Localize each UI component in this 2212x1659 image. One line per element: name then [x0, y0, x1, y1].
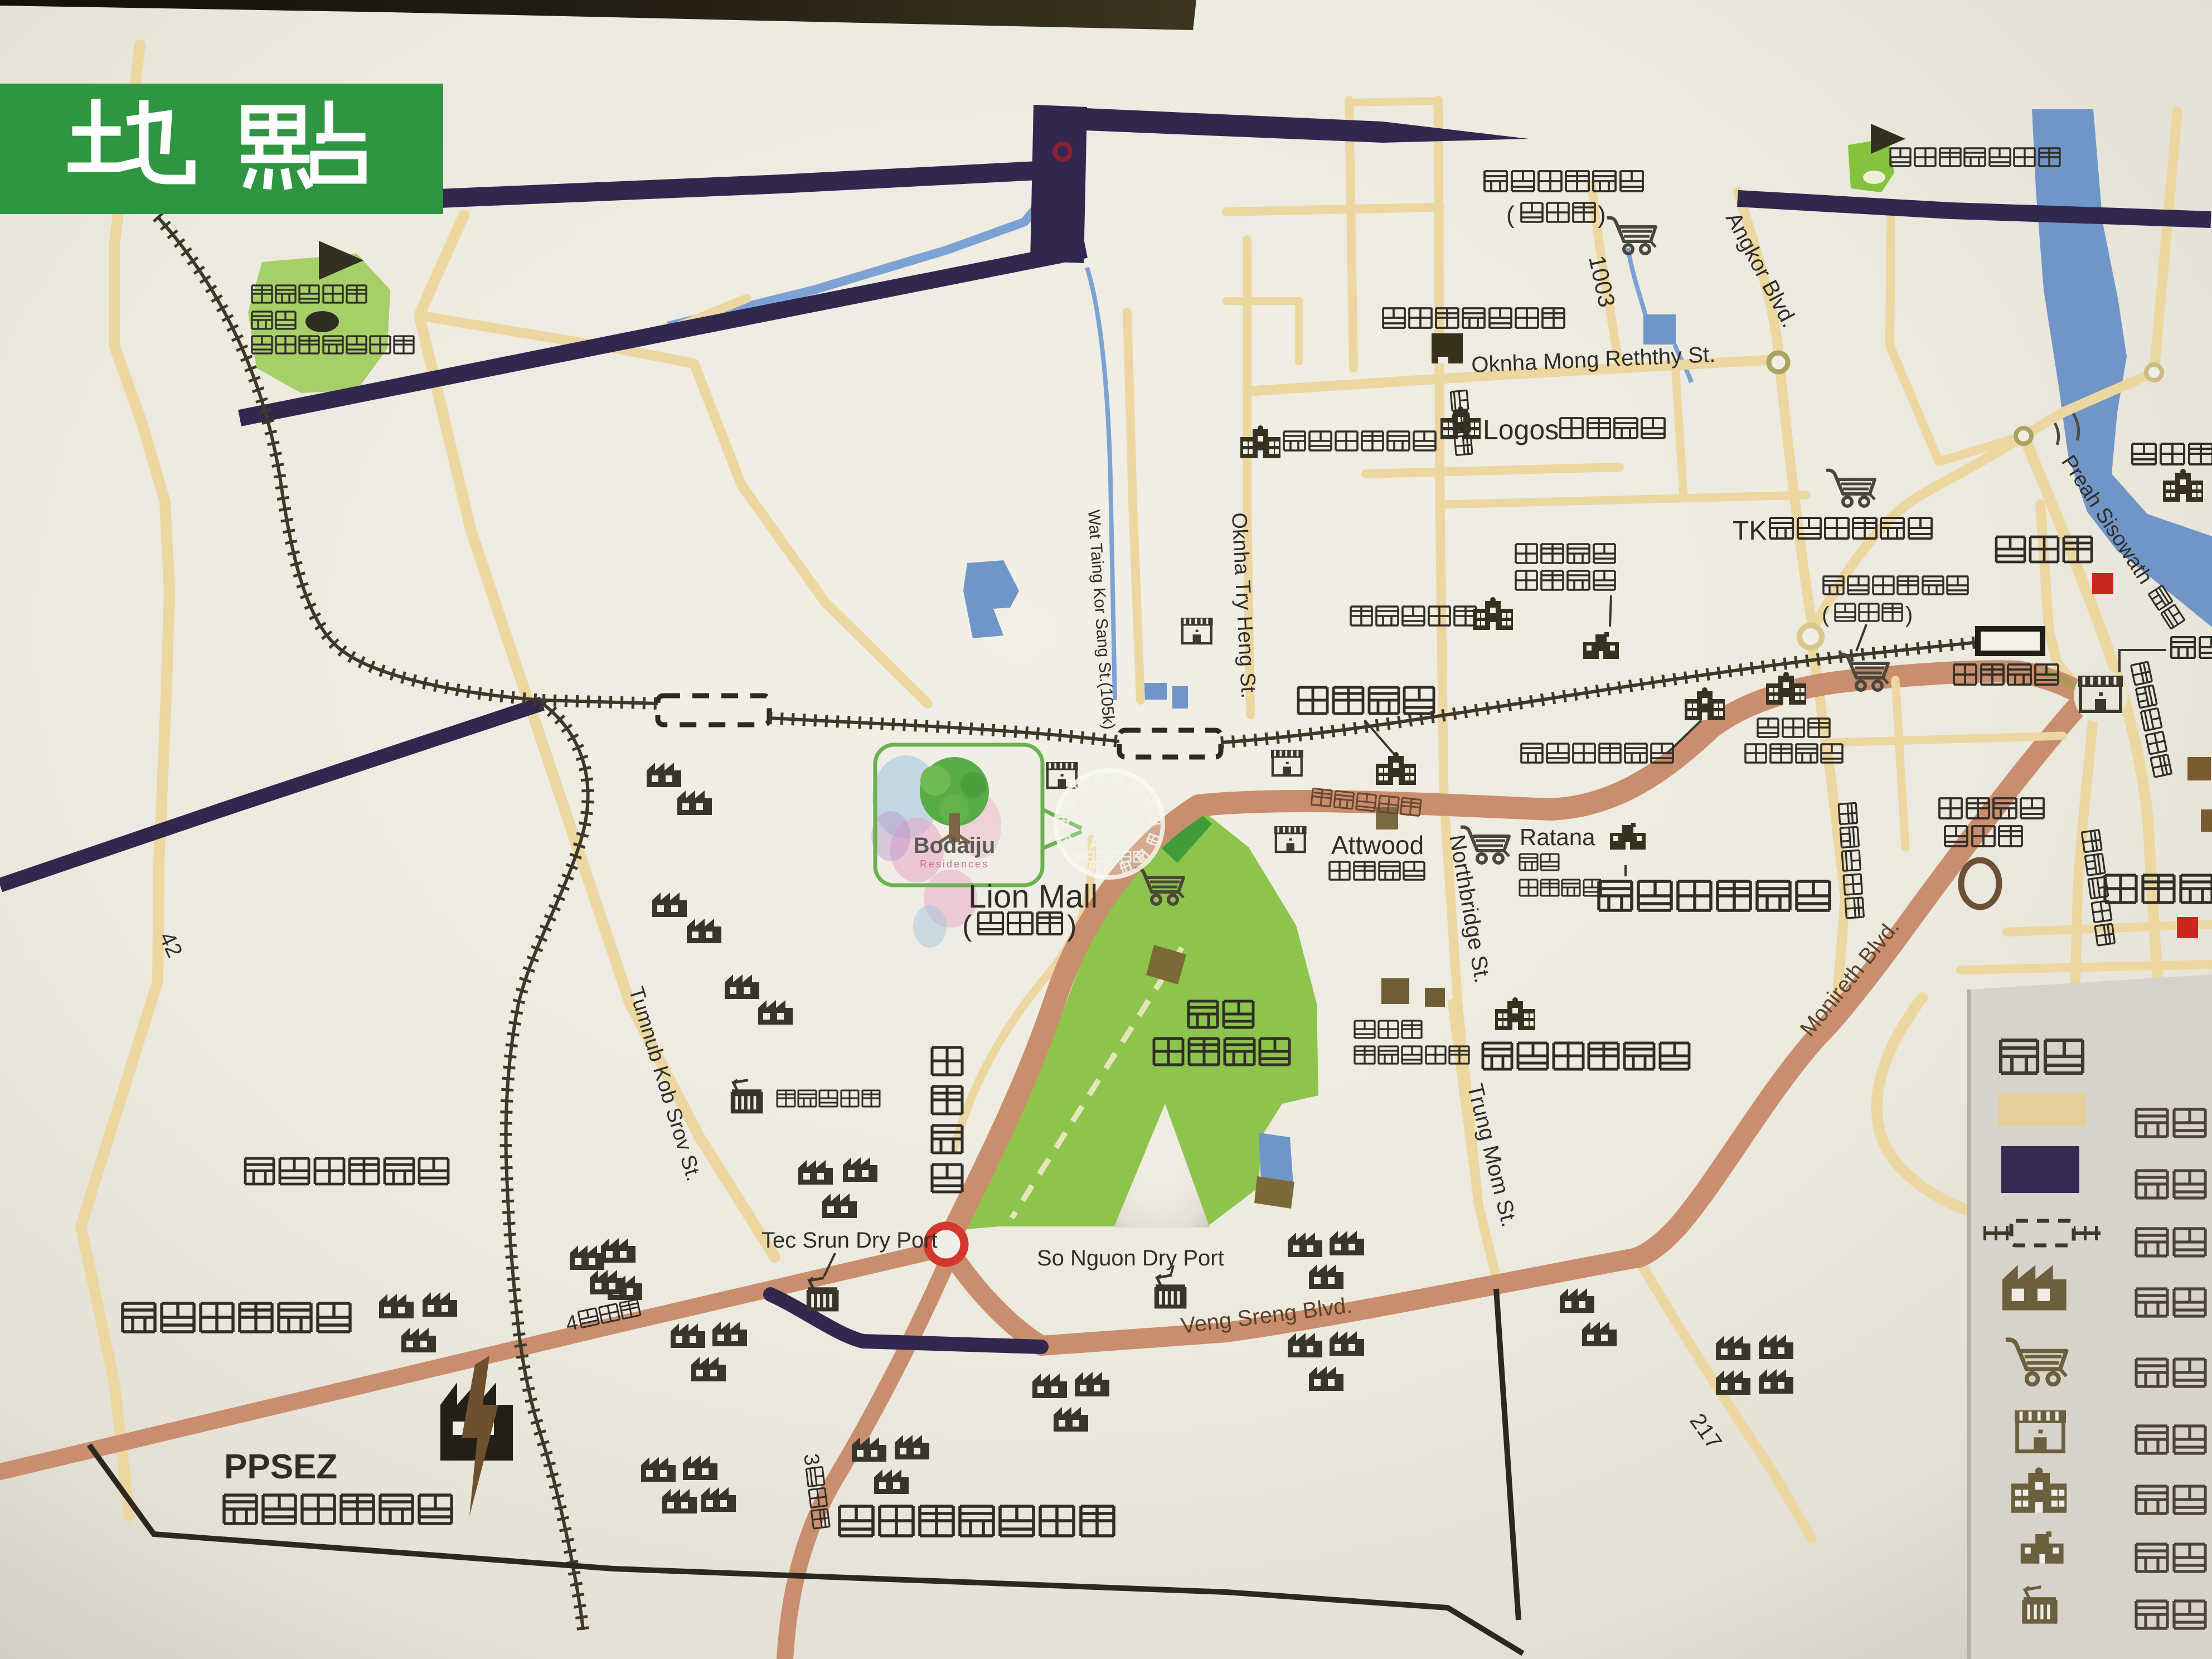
svg-text:TK: TK — [1733, 516, 1767, 546]
svg-text:(: ( — [962, 910, 972, 942]
svg-text:Logos: Logos — [1483, 414, 1559, 445]
svg-text:Attwood: Attwood — [1331, 831, 1424, 860]
svg-text:(: ( — [1506, 201, 1515, 229]
svg-text:So Nguon Dry Port: So Nguon Dry Port — [1037, 1246, 1224, 1270]
svg-text:): ) — [1905, 603, 1913, 627]
svg-text:PPSEZ: PPSEZ — [224, 1448, 337, 1486]
svg-text:Lion Mall: Lion Mall — [968, 879, 1098, 915]
svg-text:(: ( — [1822, 603, 1830, 627]
svg-text:Ratana: Ratana — [1520, 824, 1595, 850]
svg-text:Tec Srun Dry Port: Tec Srun Dry Port — [761, 1228, 938, 1253]
svg-text:): ) — [1598, 201, 1606, 229]
svg-text:): ) — [1067, 910, 1076, 942]
svg-text:Residences: Residences — [920, 858, 989, 870]
svg-text:Bodaiju: Bodaiju — [914, 833, 996, 858]
